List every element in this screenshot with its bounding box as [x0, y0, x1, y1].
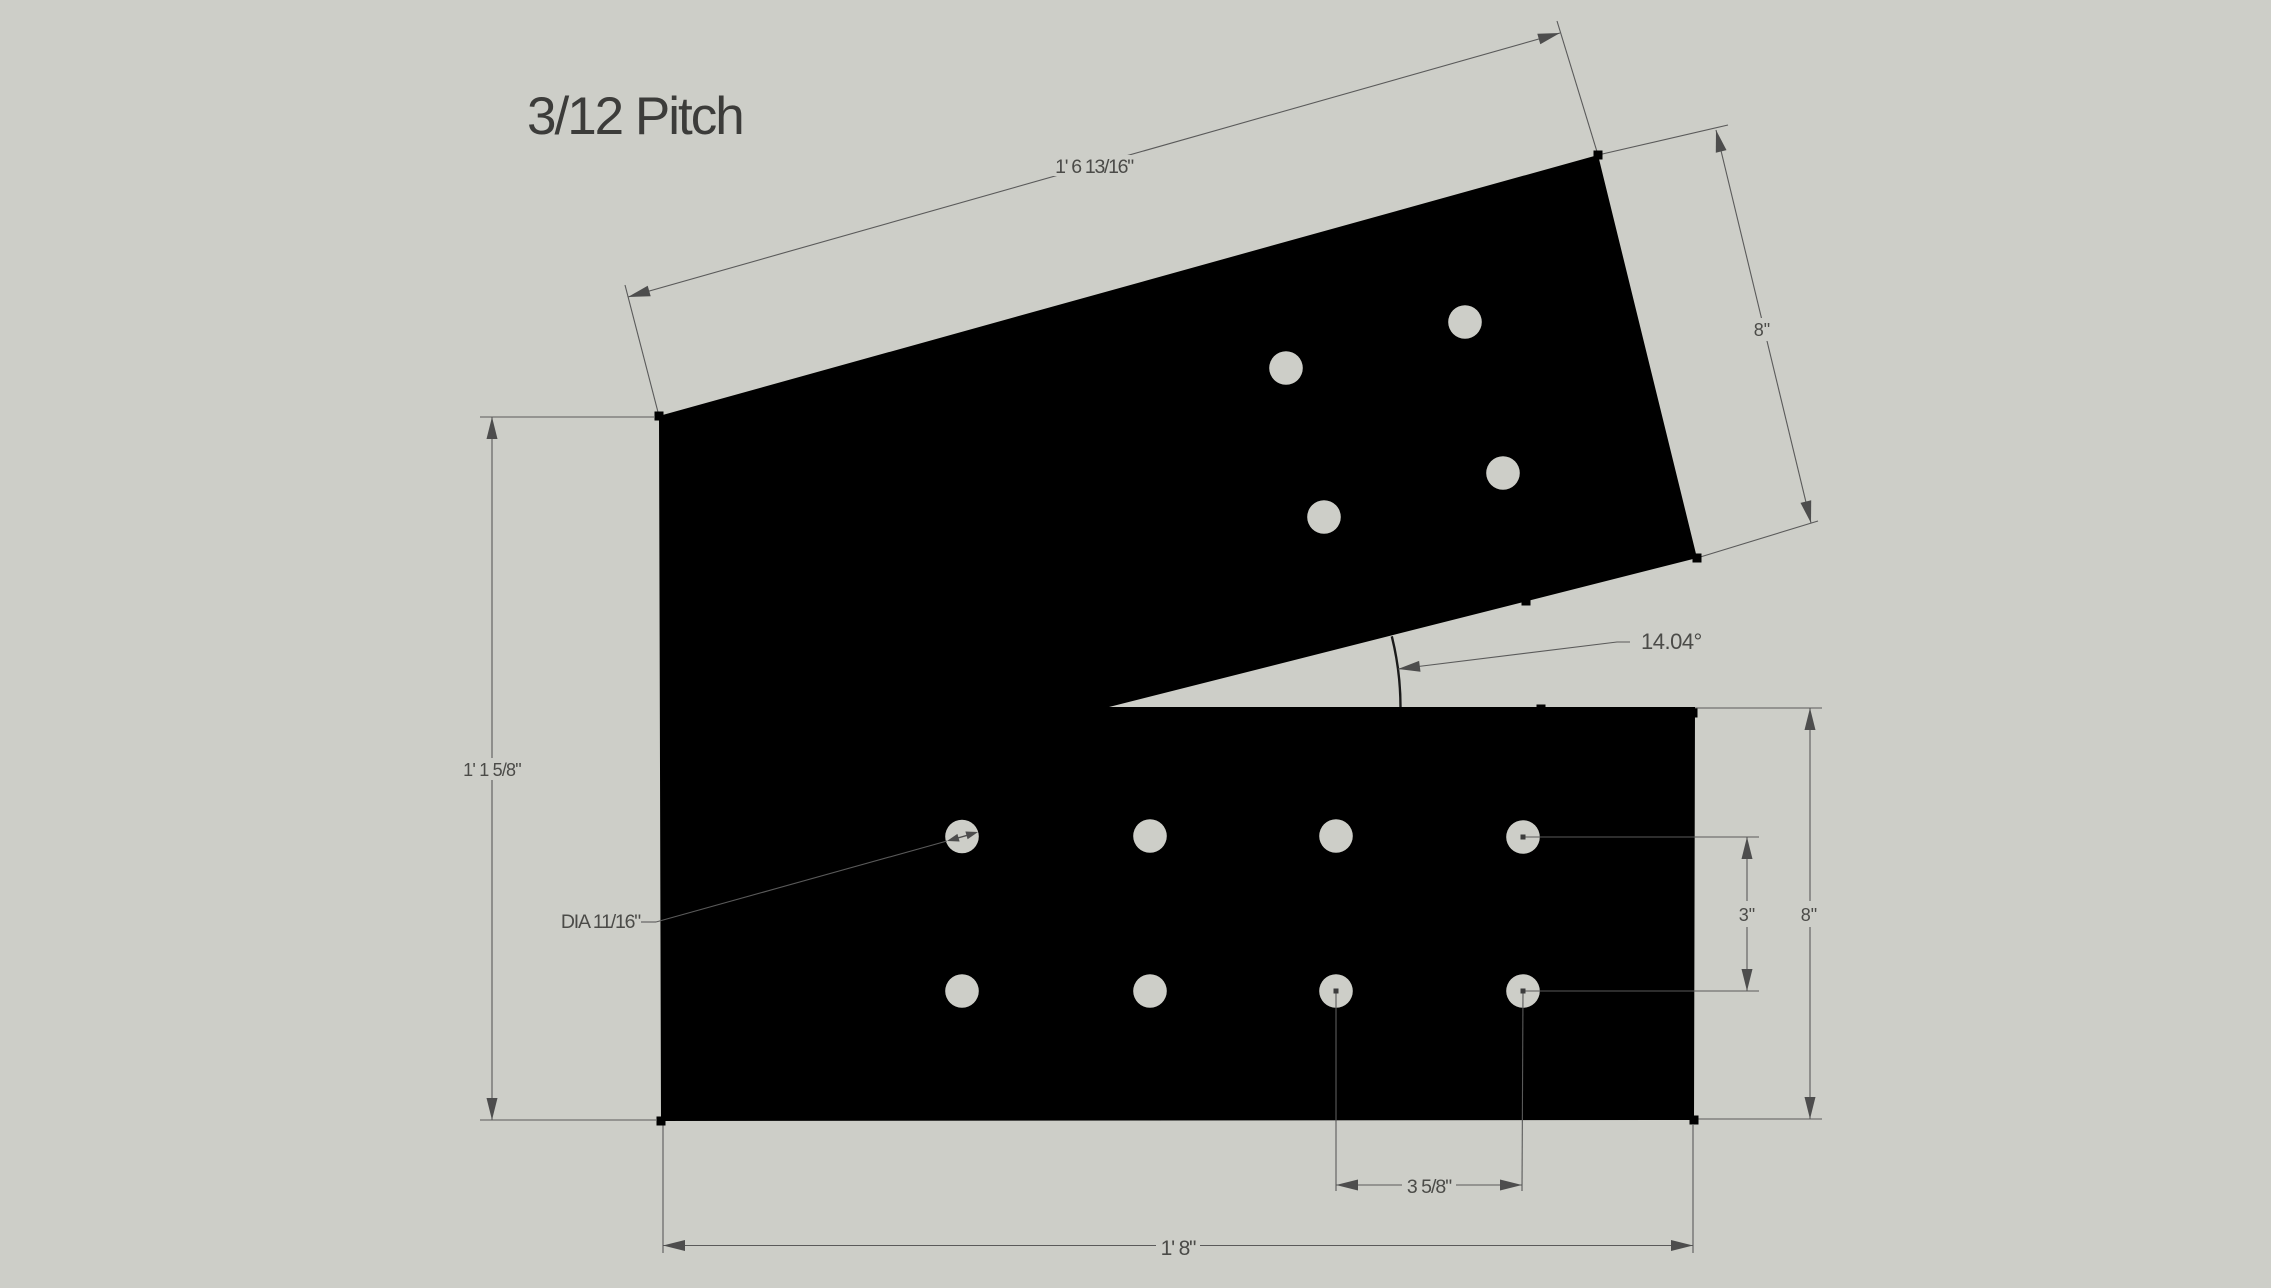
svg-text:3/12 Pitch: 3/12 Pitch: [527, 87, 743, 146]
svg-text:DIA 11/16": DIA 11/16": [561, 911, 641, 933]
svg-text:14.04°: 14.04°: [1641, 629, 1702, 654]
svg-text:8": 8": [1801, 905, 1817, 925]
svg-text:1' 6 13/16": 1' 6 13/16": [1055, 156, 1134, 178]
svg-text:1' 1 5/8": 1' 1 5/8": [463, 760, 521, 780]
svg-text:1' 8": 1' 8": [1161, 1237, 1196, 1260]
svg-text:3": 3": [1739, 905, 1755, 925]
svg-text:8": 8": [1754, 320, 1770, 340]
svg-text:3 5/8": 3 5/8": [1407, 1176, 1452, 1198]
